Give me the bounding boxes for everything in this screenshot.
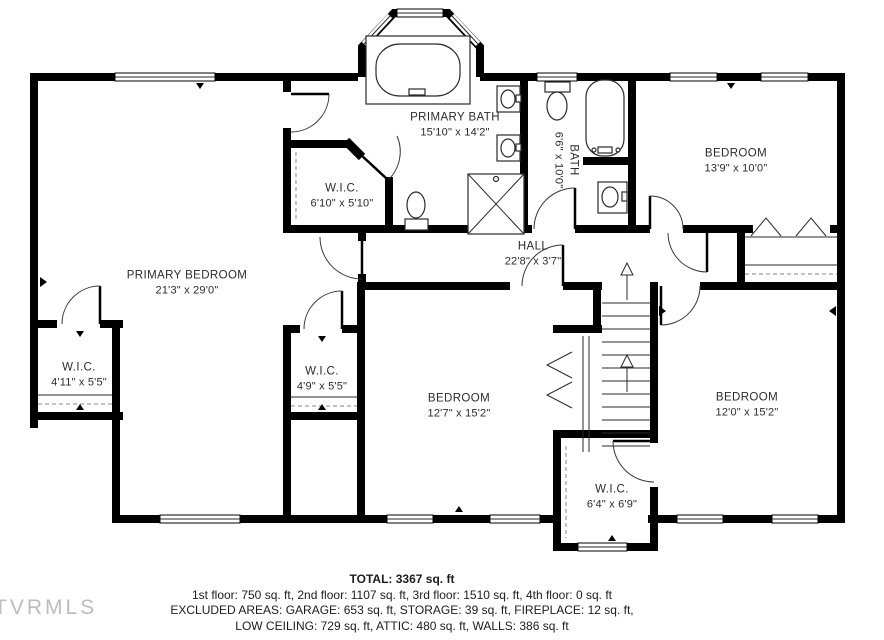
stairs-up-arrow-icon bbox=[621, 355, 633, 392]
sink bbox=[598, 182, 627, 213]
room-label-primary-bath: PRIMARY BATH 15'10" x 14'2" bbox=[410, 112, 500, 139]
door bbox=[668, 233, 707, 272]
closet-symbols bbox=[38, 152, 837, 538]
window bbox=[397, 9, 443, 17]
door bbox=[304, 291, 342, 329]
door bbox=[661, 286, 700, 325]
total-area: TOTAL: 3367 sq. ft bbox=[0, 572, 804, 588]
room-label-wic-primary: W.I.C. 6'10" x 5'10" bbox=[311, 183, 374, 210]
toilet bbox=[545, 82, 570, 120]
window bbox=[160, 515, 240, 523]
room-label-wic-west: W.I.C. 4'11" x 5'5" bbox=[51, 362, 107, 389]
bathtub bbox=[366, 36, 470, 104]
shower bbox=[468, 174, 524, 234]
low-ceiling-areas: LOW CEILING: 729 sq. ft, ATTIC: 480 sq. … bbox=[0, 619, 804, 635]
toilet bbox=[405, 192, 428, 230]
room-label-wic-mid: W.I.C. 4'9" x 5'5" bbox=[297, 366, 347, 393]
floor-areas: 1st floor: 750 sq. ft, 2nd floor: 1107 s… bbox=[0, 588, 804, 604]
window bbox=[677, 515, 723, 523]
window bbox=[537, 73, 577, 81]
room-label-bedroom-sw: BEDROOM 12'7" x 15'2" bbox=[428, 393, 491, 420]
bathtub bbox=[586, 80, 624, 156]
room-label-wic-south: W.I.C. 6'4" x 6'9" bbox=[587, 484, 637, 511]
door bbox=[534, 188, 575, 229]
floor-plan-page: PRIMARY BATH 15'10" x 14'2" W.I.C. 6'10"… bbox=[0, 0, 884, 640]
area-summary: TOTAL: 3367 sq. ft 1st floor: 750 sq. ft… bbox=[0, 572, 804, 634]
vanity-sink bbox=[497, 86, 521, 112]
window bbox=[490, 515, 540, 523]
floor-plan-drawing bbox=[0, 0, 884, 640]
window bbox=[115, 73, 215, 81]
door bbox=[650, 196, 683, 229]
door bbox=[62, 286, 100, 324]
room-label-bedroom-se: BEDROOM 12'0" x 15'2" bbox=[716, 392, 779, 419]
window bbox=[387, 515, 433, 523]
stairs-up-arrow-icon bbox=[621, 263, 633, 300]
door bbox=[360, 136, 400, 180]
room-label-hall: HALL 22'8" x 3'7" bbox=[505, 241, 562, 268]
vanity-sink bbox=[497, 135, 521, 161]
excluded-areas: EXCLUDED AREAS: GARAGE: 653 sq. ft, STOR… bbox=[0, 603, 804, 619]
room-label-bath: BATH 6'6" x 10'0" bbox=[553, 132, 580, 189]
door bbox=[291, 94, 329, 132]
window bbox=[772, 515, 818, 523]
door bbox=[320, 237, 362, 279]
window bbox=[761, 73, 808, 81]
room-label-bedroom-ne: BEDROOM 13'9" x 10'0" bbox=[705, 148, 768, 175]
door bbox=[613, 441, 654, 482]
room-label-primary-bedroom: PRIMARY BEDROOM 21'3" x 29'0" bbox=[127, 270, 248, 297]
window bbox=[578, 543, 627, 551]
window bbox=[670, 73, 717, 81]
